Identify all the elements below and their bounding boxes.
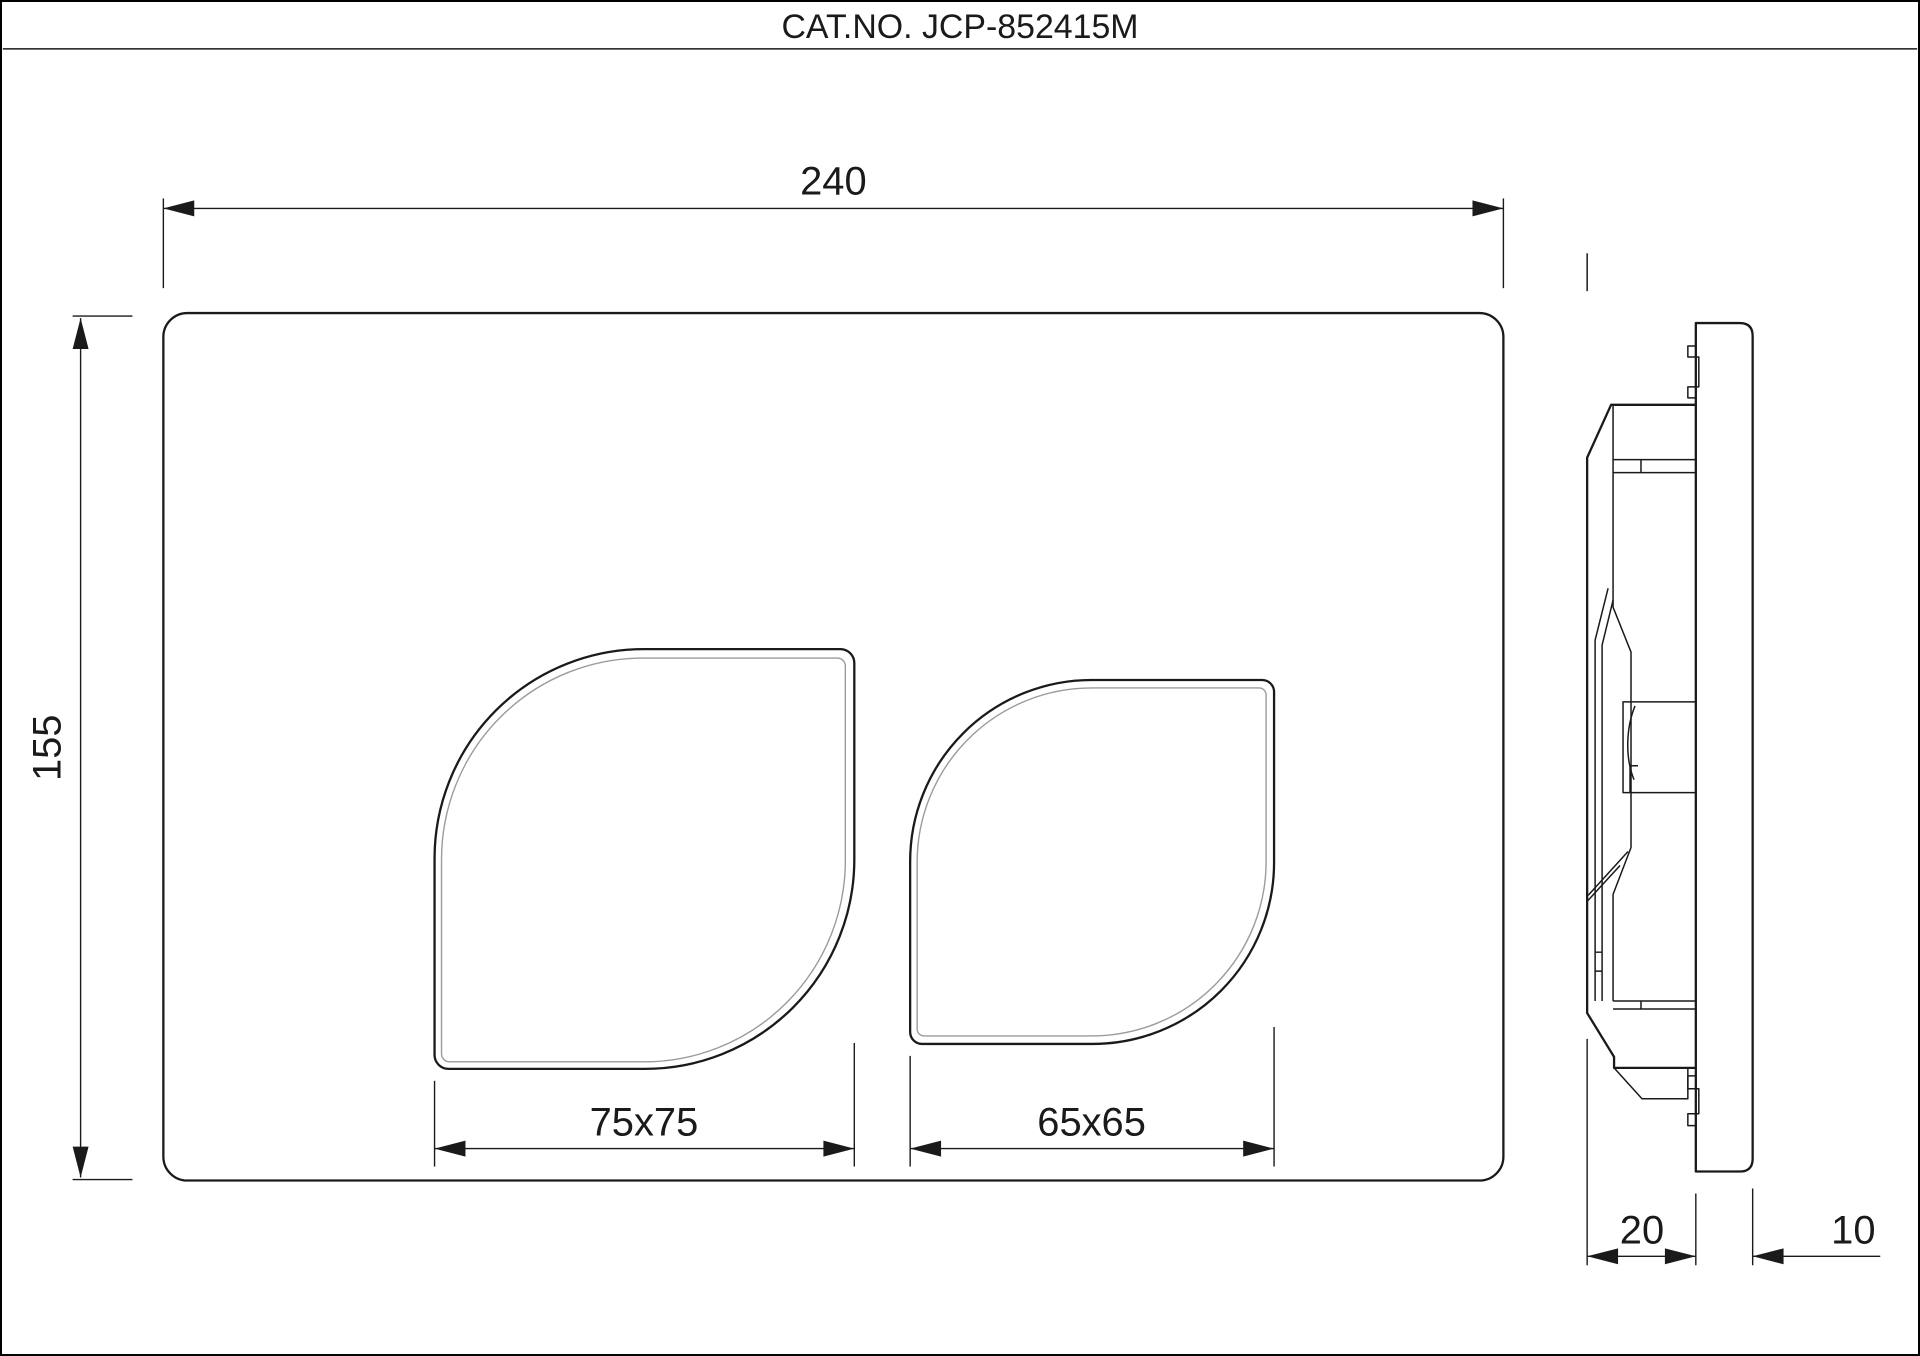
dim-75-arrow-left xyxy=(435,1141,466,1157)
side-view-lever-blade xyxy=(1595,588,1613,1001)
flush-button-small-inner-line xyxy=(917,688,1266,1036)
dim-65-arrow-right xyxy=(1243,1141,1274,1157)
side-view-frame-foot xyxy=(1614,1068,1688,1099)
technical-drawing: CAT.NO. JCP-852415M 240 155 75x75 65x65 xyxy=(2,2,1918,1354)
flush-button-large xyxy=(435,649,855,1069)
side-view-bottom-flange xyxy=(1613,1001,1696,1009)
side-view-top-flange xyxy=(1613,460,1696,473)
dim-20-arrow-right xyxy=(1665,1248,1696,1264)
dim-10-label: 10 xyxy=(1831,1208,1875,1252)
dim-240-label: 240 xyxy=(800,159,867,203)
side-view-inner-wall xyxy=(1613,405,1631,1001)
dim-155-arrow-bottom xyxy=(73,1147,89,1178)
dim-240-arrow-left xyxy=(163,200,194,216)
side-view-bottom-clip xyxy=(1688,1076,1699,1126)
side-view-top-clip xyxy=(1688,346,1699,398)
side-view-plate xyxy=(1696,323,1753,1171)
dim-155-label: 155 xyxy=(26,715,70,782)
side-view-frame-profile xyxy=(1587,405,1696,1068)
drawing-sheet: CAT.NO. JCP-852415M 240 155 75x75 65x65 xyxy=(0,0,1920,1356)
front-view-plate-outline xyxy=(163,313,1503,1180)
dim-75x75-label: 75x75 xyxy=(590,1101,699,1145)
dim-20-label: 20 xyxy=(1620,1208,1664,1252)
catalog-number-title: CAT.NO. JCP-852415M xyxy=(781,8,1138,46)
dim-65-arrow-left xyxy=(910,1141,941,1157)
dim-155-arrow-top xyxy=(73,318,89,349)
flush-button-small xyxy=(910,680,1274,1044)
dim-240-arrow-right xyxy=(1472,200,1503,216)
flush-button-large-inner-line xyxy=(442,658,846,1062)
side-view-lever-arm xyxy=(1587,851,1628,901)
dim-20-arrow-left xyxy=(1587,1248,1618,1264)
dim-10-arrow xyxy=(1753,1248,1784,1264)
side-view-latch-hook xyxy=(1628,706,1638,793)
dim-75-arrow-right xyxy=(823,1141,854,1157)
dim-65x65-label: 65x65 xyxy=(1037,1101,1146,1145)
